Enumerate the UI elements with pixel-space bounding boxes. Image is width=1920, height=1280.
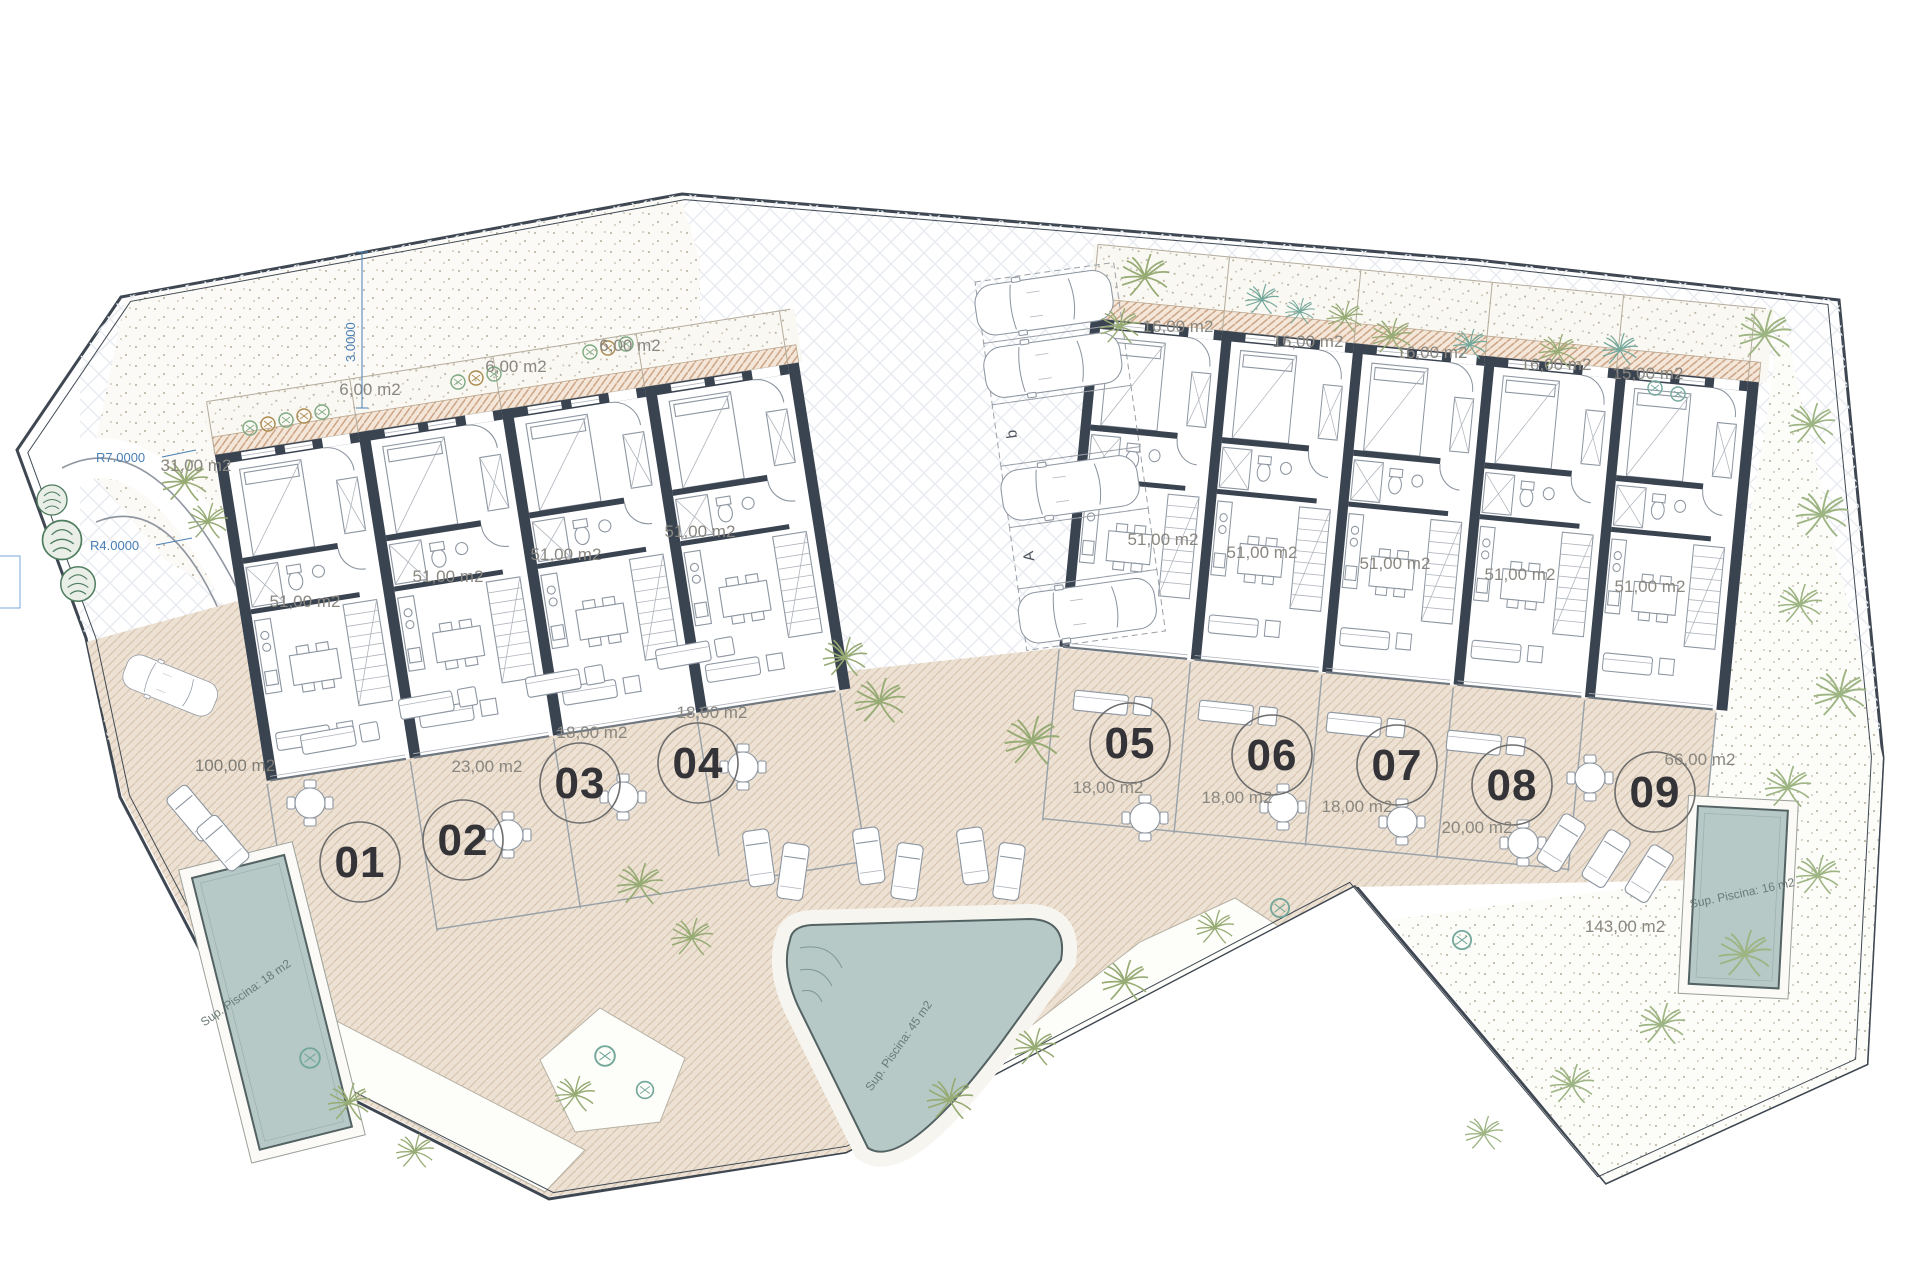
unit-03-garden-area: 6,00 m2: [485, 357, 546, 376]
unit-06-garden-area: 16,00 m2: [1273, 332, 1344, 351]
svg-text:09: 09: [1630, 768, 1681, 817]
bush-icon: [37, 485, 67, 515]
svg-text:05: 05: [1105, 719, 1156, 768]
unit-08-terrace-area: 20,00 m2: [1442, 818, 1513, 837]
unit-02-terrace-area: 23,00 m2: [452, 757, 523, 776]
site-plan-canvas: b A Sup. Piscina: 18 m2 Sup. Piscina: 45…: [0, 0, 1920, 1280]
bush-icon: [43, 521, 82, 560]
unit-07-interior-area: 51,00 m2: [1360, 554, 1431, 573]
palm-icon: [1465, 1116, 1503, 1149]
unit-09-terrace-area: 66,00 m2: [1665, 750, 1736, 769]
svg-text:03: 03: [555, 759, 606, 808]
bush-icon: [61, 567, 96, 602]
unit-07-garden-area: 16,00 m2: [1397, 343, 1468, 362]
svg-text:08: 08: [1487, 761, 1538, 810]
unit-01-terrace-area: 100,00 m2: [195, 756, 275, 775]
dimension-offset-label: 3.0000: [343, 322, 358, 362]
site-plan-drawing: b A Sup. Piscina: 18 m2 Sup. Piscina: 45…: [0, 0, 1920, 1280]
dimension-r7-label: R7.0000: [96, 450, 145, 465]
unit-02-garden-area: 6,00 m2: [339, 380, 400, 399]
svg-text:06: 06: [1247, 731, 1298, 780]
unit-04-garden-area: 6,00 m2: [599, 336, 660, 355]
unit-06-interior-area: 51,00 m2: [1227, 543, 1298, 562]
unit-06-terrace-area: 18,00 m2: [1202, 788, 1273, 807]
unit-09-garden-area: 15,00 m2: [1613, 364, 1684, 383]
unit-05-interior-area: 51,00 m2: [1128, 530, 1199, 549]
svg-text:07: 07: [1372, 741, 1423, 790]
unit-01-interior-area: 51,00 m2: [270, 592, 341, 611]
unit-02-interior-area: 51,00 m2: [413, 567, 484, 586]
left-bed-area-label: 31,00 m2: [161, 456, 232, 475]
unit-05-garden-area: 16,00 m2: [1143, 317, 1214, 336]
svg-text:04: 04: [673, 739, 724, 788]
unit-08-interior-area: 51,00 m2: [1485, 565, 1556, 584]
svg-text:02: 02: [438, 816, 489, 865]
unit-05-terrace-area: 18,00 m2: [1073, 778, 1144, 797]
unit-03-terrace-area: 18,00 m2: [557, 723, 628, 742]
legend-box-partial: [0, 556, 20, 608]
unit-04-interior-area: 51,00 m2: [665, 522, 736, 541]
unit-07-terrace-area: 18,00 m2: [1322, 797, 1393, 816]
dimension-r4-label: R4.0000: [90, 538, 139, 553]
unit-08-garden-area: 16,00 m2: [1521, 355, 1592, 374]
unit-03-interior-area: 51,00 m2: [531, 545, 602, 564]
right-garden-area-label: 143,00 m2: [1585, 917, 1665, 936]
svg-text:01: 01: [335, 838, 386, 887]
unit-04-terrace-area: 18,00 m2: [677, 703, 748, 722]
unit-09-interior-area: 51,00 m2: [1615, 577, 1686, 596]
